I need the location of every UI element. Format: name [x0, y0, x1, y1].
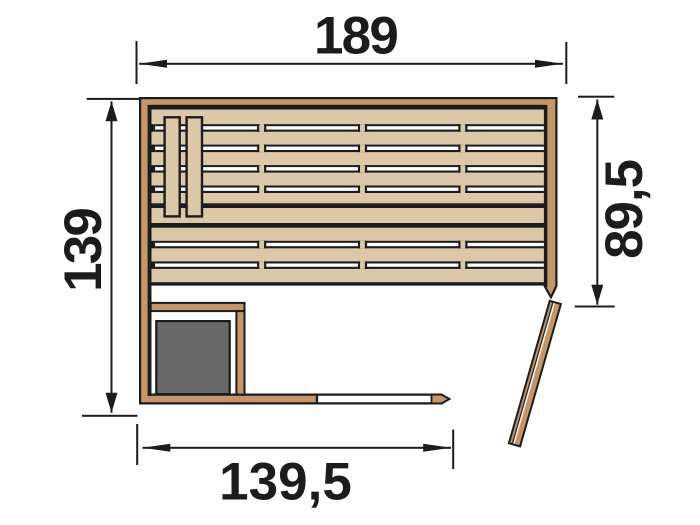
svg-text:89,5: 89,5	[595, 160, 654, 259]
svg-text:139: 139	[54, 209, 113, 292]
svg-text:139,5: 139,5	[219, 453, 352, 512]
svg-text:189: 189	[314, 7, 397, 66]
